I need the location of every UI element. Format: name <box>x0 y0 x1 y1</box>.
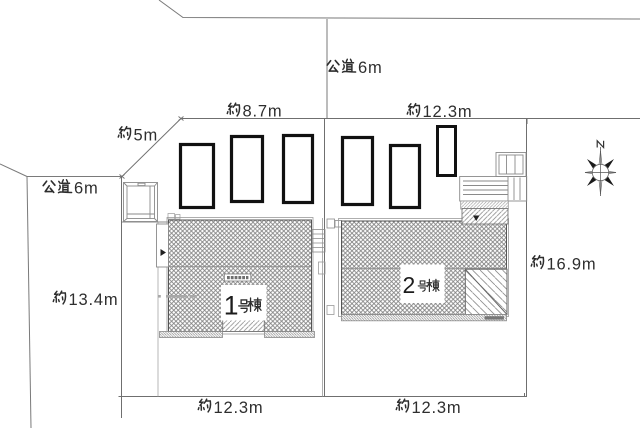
svg-text:16.9m: 16.9m <box>547 256 597 274</box>
svg-text:6m: 6m <box>358 59 383 77</box>
svg-text:8.7m: 8.7m <box>243 103 283 121</box>
svg-text:6m: 6m <box>74 180 99 198</box>
svg-text:12.3m: 12.3m <box>214 399 264 417</box>
svg-text:2: 2 <box>403 272 416 298</box>
svg-text:12.3m: 12.3m <box>412 399 462 417</box>
svg-text:5m: 5m <box>134 127 159 145</box>
svg-text:13.4m: 13.4m <box>69 291 119 309</box>
svg-text:1: 1 <box>224 290 239 320</box>
svg-text:12.3m: 12.3m <box>423 103 473 121</box>
